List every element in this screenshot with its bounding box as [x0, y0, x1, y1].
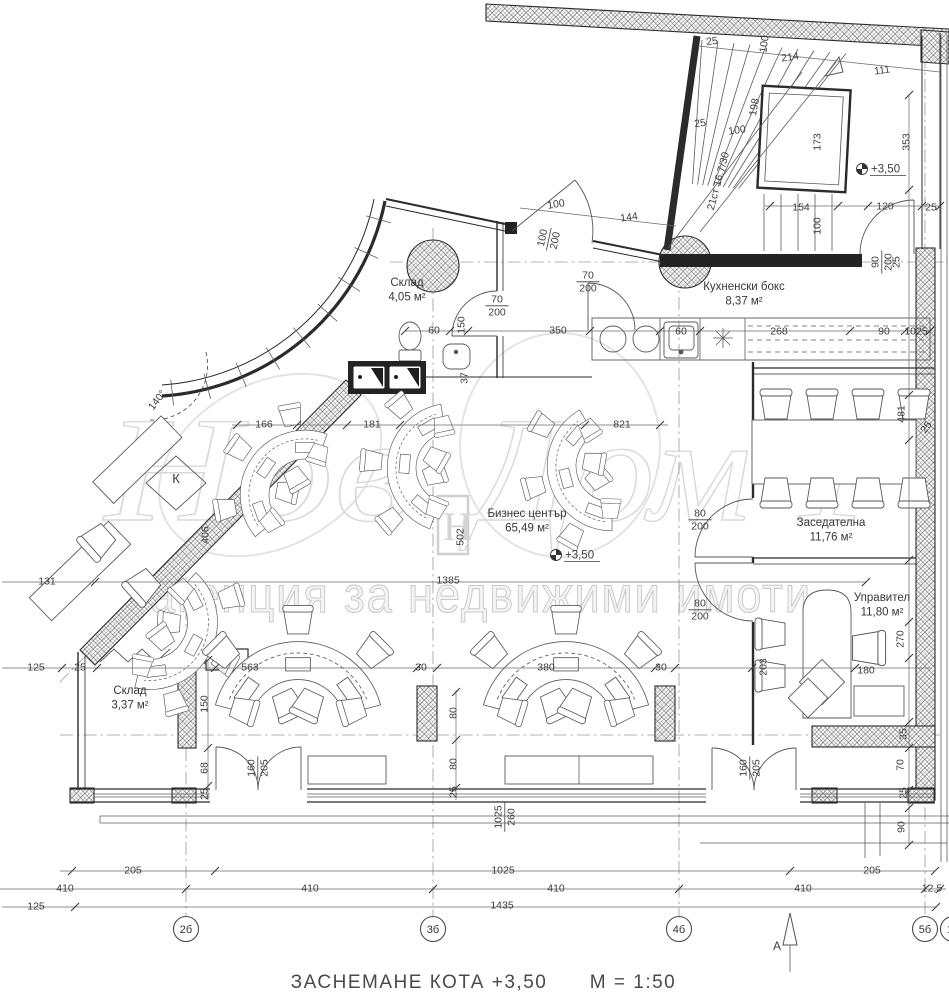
dimension-label: 410 — [547, 883, 565, 895]
dimension-label: 181 — [363, 419, 381, 431]
dimension-label: 154 — [792, 202, 810, 214]
svg-text:80: 80 — [448, 707, 460, 719]
dimension-label: 1025260 — [493, 802, 518, 832]
svg-text:125: 125 — [27, 662, 45, 674]
svg-text:70: 70 — [491, 294, 503, 306]
chair — [852, 389, 884, 419]
dimension-label: 198 — [747, 97, 762, 116]
dimension-label: 268 — [770, 326, 788, 338]
svg-text:100: 100 — [546, 197, 565, 212]
svg-text:80: 80 — [694, 508, 706, 520]
chair — [806, 389, 838, 419]
dimension-label: 111 — [873, 63, 891, 77]
chair — [353, 630, 395, 672]
section-label: А — [773, 939, 781, 953]
svg-text:Склад: Склад — [390, 277, 424, 289]
wall-stair-slant — [667, 36, 697, 250]
dimension-label: 90 — [896, 821, 908, 833]
floor-plan-canvas: Нов Н Дом 1 агенция за недвижими имоти — [0, 0, 949, 1000]
dimension-label: 160205 — [246, 756, 271, 779]
dimension-label: 35 — [898, 728, 910, 740]
monitor — [286, 658, 311, 671]
pier — [908, 788, 934, 803]
svg-text:203: 203 — [758, 658, 770, 676]
svg-text:25: 25 — [898, 787, 910, 799]
svg-text:205: 205 — [751, 759, 763, 777]
dimension-label: 502 — [455, 528, 467, 546]
kitchen-counter — [592, 318, 930, 360]
column — [655, 686, 675, 741]
chair — [898, 478, 930, 508]
svg-text:268: 268 — [770, 326, 788, 338]
svg-text:25: 25 — [891, 256, 903, 268]
svg-text:25: 25 — [706, 35, 719, 48]
svg-text:410: 410 — [56, 883, 74, 895]
svg-text:350: 350 — [549, 325, 567, 337]
dimension-label: 205 — [863, 865, 881, 877]
svg-text:410: 410 — [301, 883, 319, 895]
svg-text:200: 200 — [691, 521, 709, 533]
svg-text:1025: 1025 — [493, 805, 505, 829]
dimension-label: 125 — [27, 901, 45, 913]
svg-text:160: 160 — [738, 759, 750, 777]
dimension-label: 1025 — [491, 865, 515, 877]
credenza — [854, 686, 904, 716]
grid-bubble: 3б — [421, 917, 446, 942]
section-arrow — [783, 913, 797, 945]
svg-text:3,37 м²: 3,37 м² — [111, 700, 148, 712]
chair — [806, 478, 838, 508]
svg-text:380: 380 — [537, 662, 555, 674]
svg-text:406: 406 — [200, 526, 212, 544]
dimension-label: 270 — [895, 630, 907, 648]
drawing-title: ЗАСНЕМАНЕ КОТА +3,50 — [291, 972, 548, 993]
svg-text:60: 60 — [428, 325, 440, 337]
wall-manager-bottom — [812, 726, 935, 747]
svg-text:8,37 м²: 8,37 м² — [725, 296, 762, 308]
dimension-label: 214 — [781, 50, 800, 64]
title-block: ЗАСНЕМАНЕ КОТА +3,50 М = 1:50 — [291, 972, 677, 993]
cooktop-burner — [633, 326, 659, 352]
svg-text:4б: 4б — [673, 924, 685, 936]
dimension-label: 30 — [655, 662, 667, 674]
dimension-label: 80 — [448, 758, 460, 770]
sink — [443, 344, 470, 369]
svg-text:К: К — [172, 471, 180, 486]
dimension-label: 410 — [301, 883, 319, 895]
curved-wall-inner — [162, 199, 374, 385]
grid-bubble: 4б — [667, 917, 692, 942]
svg-text:166: 166 — [255, 419, 273, 431]
dimension-label: 68 — [199, 762, 211, 774]
dimension-label: 410 — [794, 883, 812, 895]
svg-text:90: 90 — [878, 326, 890, 338]
svg-text:1385: 1385 — [436, 575, 460, 587]
dimension-label: 25 — [891, 256, 903, 268]
pier — [172, 788, 196, 803]
chair — [283, 605, 313, 634]
chair — [755, 618, 785, 650]
svg-text:563: 563 — [241, 662, 259, 674]
svg-text:180: 180 — [857, 665, 875, 677]
dimension-label: 205 — [124, 865, 142, 877]
svg-text:100: 100 — [728, 123, 747, 137]
dimension-label: 25 — [898, 787, 910, 799]
svg-text:150: 150 — [456, 316, 468, 334]
dimension-label: 12,5 — [922, 883, 943, 895]
svg-text:70: 70 — [582, 270, 594, 282]
dimension-label: 60 — [428, 325, 440, 337]
chair — [760, 389, 792, 419]
dimension-label: 821 — [613, 419, 631, 431]
dimension-label: 25 — [693, 117, 706, 131]
svg-text:144: 144 — [620, 210, 639, 224]
dimension-label: 25 — [199, 788, 211, 800]
svg-text:Кухненски бокс: Кухненски бокс — [703, 281, 785, 293]
svg-text:200: 200 — [488, 307, 506, 319]
svg-text:Бизнес център: Бизнес център — [488, 508, 567, 520]
room-label: Кухненски бокс8,37 м² — [703, 281, 785, 308]
svg-text:410: 410 — [547, 883, 565, 895]
pier — [70, 788, 94, 803]
svg-text:60: 60 — [675, 326, 687, 338]
column — [417, 686, 437, 741]
svg-text:25: 25 — [693, 117, 706, 131]
svg-text:12,5: 12,5 — [922, 883, 943, 895]
conference-table — [752, 420, 916, 484]
svg-text:821: 821 — [613, 419, 631, 431]
svg-text:353: 353 — [901, 133, 913, 151]
watermark-subtitle: агенция за недвижими имоти — [150, 567, 812, 623]
chair — [853, 630, 886, 665]
dimension-label: 173 — [812, 133, 824, 151]
wall-top-corner — [921, 30, 949, 64]
radiator — [308, 756, 386, 784]
svg-text:502: 502 — [455, 528, 467, 546]
svg-text:70: 70 — [895, 759, 907, 771]
dimension-label: 1385 — [436, 575, 460, 587]
svg-text:481: 481 — [896, 405, 908, 423]
dimension-label: 70200 — [485, 294, 508, 319]
door-opening — [210, 785, 307, 804]
svg-text:11,76 м²: 11,76 м² — [810, 532, 853, 544]
dimension-label: 25 — [925, 202, 937, 214]
pier — [812, 788, 837, 803]
dimension-label: 70200 — [576, 270, 599, 295]
dimension-label: 410 — [56, 883, 74, 895]
room-label: Склад4,05 м² — [388, 277, 425, 304]
svg-text:+3,50: +3,50 — [871, 164, 900, 176]
dimension-label: 120 — [876, 201, 894, 213]
grid-bubble: 1а — [941, 917, 949, 942]
cooktop-burner — [600, 326, 626, 352]
svg-text:+3,50: +3,50 — [565, 550, 594, 562]
chair — [852, 478, 884, 508]
elevation-mark: +3,50 — [857, 164, 907, 176]
monitor — [399, 454, 411, 474]
dimension-label: 380 — [537, 662, 555, 674]
svg-text:Склад: Склад — [113, 685, 147, 697]
dimension-label: 80 — [448, 707, 460, 719]
svg-text:35: 35 — [898, 728, 910, 740]
dimension-label: 1025 — [904, 326, 928, 338]
dimension-label: 150 — [199, 695, 211, 713]
svg-text:90: 90 — [896, 821, 908, 833]
svg-text:100: 100 — [757, 34, 771, 53]
svg-text:30: 30 — [655, 662, 667, 674]
dimension-label: 563 — [241, 662, 259, 674]
svg-text:260: 260 — [506, 808, 518, 826]
dimension-label: 25 — [74, 662, 86, 674]
dimension-label: 481 — [896, 405, 908, 423]
door-swing — [575, 180, 593, 243]
svg-text:125: 125 — [27, 901, 45, 913]
monitor — [554, 658, 579, 671]
svg-text:150: 150 — [199, 695, 211, 713]
room-label: Склад3,37 м² — [111, 685, 148, 712]
dimension-label: 90 — [878, 326, 890, 338]
svg-text:111: 111 — [873, 63, 891, 77]
svg-text:200: 200 — [548, 231, 563, 251]
svg-text:3б: 3б — [427, 924, 439, 936]
svg-text:154: 154 — [792, 202, 810, 214]
svg-text:214: 214 — [781, 50, 800, 64]
svg-text:160: 160 — [246, 759, 258, 777]
svg-text:1025: 1025 — [904, 326, 928, 338]
svg-text:68: 68 — [199, 762, 211, 774]
svg-text:410: 410 — [794, 883, 812, 895]
svg-text:198: 198 — [747, 97, 762, 116]
svg-text:1435: 1435 — [490, 900, 514, 912]
svg-text:200: 200 — [691, 611, 709, 623]
svg-text:5б: 5б — [919, 924, 931, 936]
dimension-label: 144 — [620, 210, 639, 224]
dimension-label: 180 — [857, 665, 875, 677]
svg-text:37: 37 — [459, 372, 471, 384]
svg-text:11,80 м²: 11,80 м² — [861, 607, 904, 619]
dimension-label: 100 — [757, 34, 771, 53]
dimension-label: 70 — [895, 759, 907, 771]
svg-text:120: 120 — [876, 201, 894, 213]
svg-text:205: 205 — [259, 759, 271, 777]
dimension-label: 350 — [549, 325, 567, 337]
dimension-label: 203 — [758, 658, 770, 676]
workstation-cluster — [469, 605, 662, 727]
svg-text:Заседателна: Заседателна — [797, 517, 866, 529]
svg-text:270: 270 — [895, 630, 907, 648]
dimension-label: 150 — [456, 316, 468, 334]
elevation-mark: +3,50 — [551, 550, 601, 562]
room-label: Управител11,80 м² — [854, 592, 910, 619]
section-marker: А — [773, 913, 797, 972]
svg-text:200: 200 — [579, 283, 597, 295]
svg-text:25: 25 — [74, 662, 86, 674]
svg-text:30: 30 — [415, 662, 427, 674]
dimension-label: 100 — [546, 197, 565, 212]
svg-text:1025: 1025 — [491, 865, 515, 877]
dimension-label: 60 — [675, 326, 687, 338]
grid-bubble: 5б — [913, 917, 938, 942]
svg-text:25: 25 — [925, 202, 937, 214]
svg-text:173: 173 — [812, 133, 824, 151]
dimension-label: 25 — [448, 786, 460, 798]
svg-text:181: 181 — [363, 419, 381, 431]
dimension-label: 100 — [728, 123, 747, 137]
svg-text:4,05 м²: 4,05 м² — [388, 292, 425, 304]
door-opening — [706, 785, 800, 804]
svg-text:25: 25 — [448, 786, 460, 798]
svg-text:205: 205 — [124, 865, 142, 877]
dimension-label: 100 — [812, 217, 824, 235]
dimension-label: 1435 — [490, 900, 514, 912]
dimension-label: 166 — [255, 419, 273, 431]
svg-text:100: 100 — [812, 217, 824, 235]
chair — [600, 498, 621, 518]
dimension-label: 131 — [38, 576, 56, 588]
toilet — [399, 322, 421, 350]
dimension-label: 30 — [415, 662, 427, 674]
svg-text:80: 80 — [448, 758, 460, 770]
svg-text:131: 131 — [38, 576, 56, 588]
grid-bubble: 2б — [174, 917, 199, 942]
chair — [431, 415, 455, 438]
svg-text:80: 80 — [694, 598, 706, 610]
svg-text:65,49 м²: 65,49 м² — [505, 523, 549, 535]
svg-text:90: 90 — [870, 256, 882, 268]
dimension-label: 25 — [706, 35, 719, 48]
svg-text:2б: 2б — [180, 924, 192, 936]
svg-text:205: 205 — [863, 865, 881, 877]
drawing-scale: М = 1:50 — [590, 972, 676, 993]
dimension-label: 353 — [901, 133, 913, 151]
dimension-label: 37 — [459, 372, 471, 384]
dimension-label: 406 — [200, 526, 212, 544]
chair — [760, 478, 792, 508]
dimension-label: 125 — [27, 662, 45, 674]
svg-text:25: 25 — [199, 788, 211, 800]
svg-text:Управител: Управител — [854, 592, 910, 604]
chair — [551, 605, 581, 634]
floor-plan-page: Нов Н Дом 1 агенция за недвижими имоти — [0, 0, 949, 1000]
wall-kitchen-top — [660, 254, 862, 267]
chair — [469, 630, 511, 672]
dimension-label: 100200 — [534, 225, 563, 253]
dimension-label: 160205 — [738, 756, 763, 779]
